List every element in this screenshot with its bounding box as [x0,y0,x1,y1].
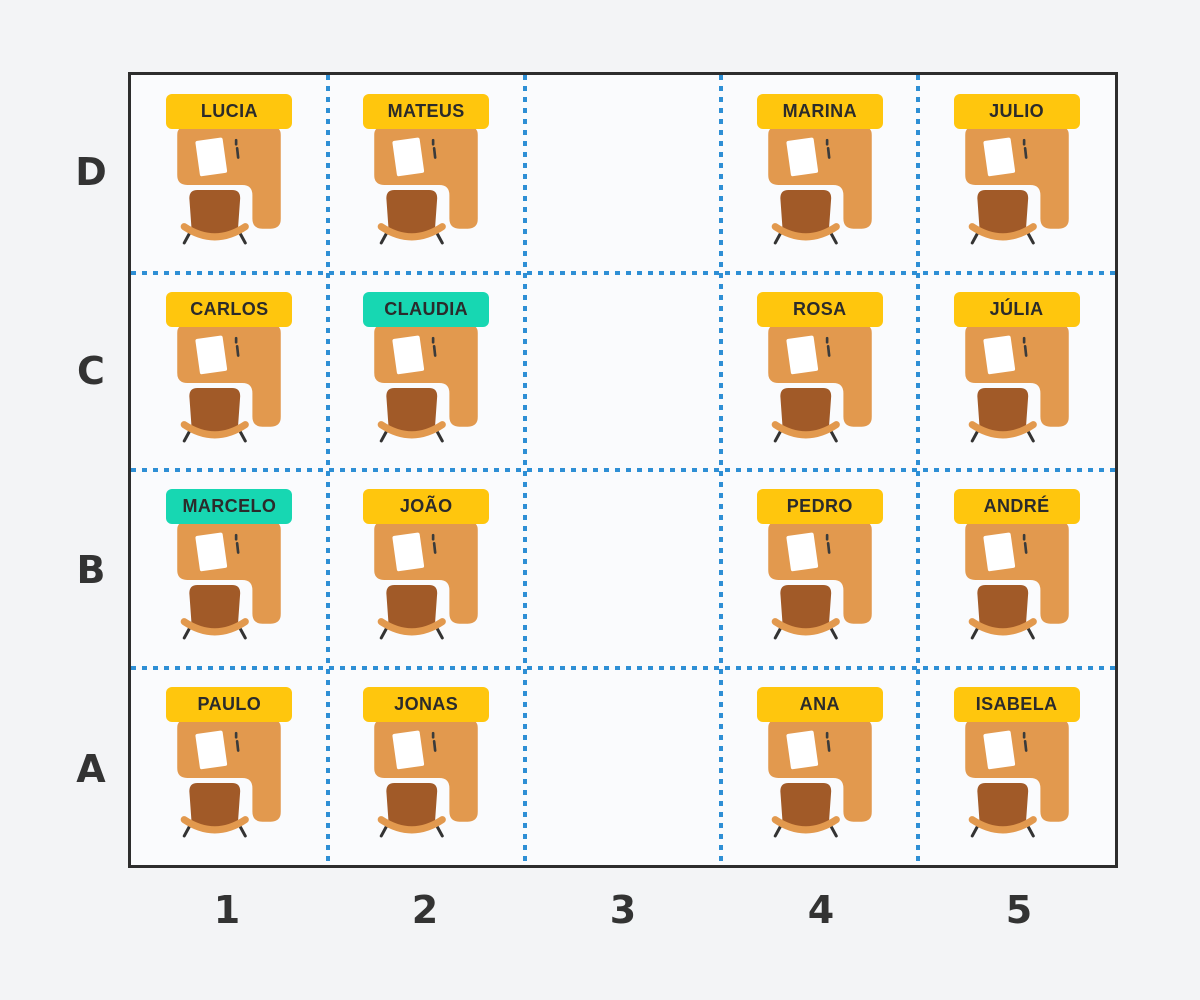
desk-icon [177,127,281,247]
seat-cell-C3 [525,273,722,471]
desk-icon [374,127,478,247]
seat-name-tag: ROSA [757,292,883,327]
seat-cell-C2: CLAUDIA [328,273,525,471]
seat-name-tag: PEDRO [757,489,883,524]
row-label-D: D [58,72,124,271]
seat-A2[interactable]: JONAS [363,687,489,840]
seat-cell-A4: ANA [721,668,918,866]
seat-name-tag: CARLOS [166,292,292,327]
seat-B1[interactable]: MARCELO [166,489,292,642]
seat-A5[interactable]: ISABELA [954,687,1080,840]
seat-name-tag: JOÃO [363,489,489,524]
seat-D5[interactable]: JULIO [954,94,1080,247]
seat-name-tag: PAULO [166,687,292,722]
seat-A4[interactable]: ANA [757,687,883,840]
seat-name-tag: MARINA [757,94,883,129]
grid-divider-horizontal-3 [131,666,1115,670]
desk-icon [374,720,478,840]
seat-cell-D1: LUCIA [131,75,328,273]
seat-cell-C4: ROSA [721,273,918,471]
seat-cell-A2: JONAS [328,668,525,866]
desk-icon [965,720,1069,840]
grid-divider-horizontal-2 [131,468,1115,472]
desk-icon [965,127,1069,247]
col-label-1: 1 [128,871,326,949]
row-label-B: B [58,470,124,669]
desk-icon [768,325,872,445]
desk-icon [768,127,872,247]
seat-name-tag: MARCELO [166,489,292,524]
seat-cell-B3 [525,470,722,668]
col-label-2: 2 [326,871,524,949]
col-labels: 12345 [128,871,1118,949]
seat-name-tag: LUCIA [166,94,292,129]
desk-icon [768,720,872,840]
seat-D4[interactable]: MARINA [757,94,883,247]
seat-name-tag: ISABELA [954,687,1080,722]
seat-name-tag: JULIO [954,94,1080,129]
seat-cell-B5: ANDRÉ [918,470,1115,668]
seat-D1[interactable]: LUCIA [166,94,292,247]
desk-icon [177,522,281,642]
seat-cell-C1: CARLOS [131,273,328,471]
desk-icon [177,325,281,445]
seat-name-tag: JONAS [363,687,489,722]
seat-cell-A5: ISABELA [918,668,1115,866]
seat-D2[interactable]: MATEUS [363,94,489,247]
col-label-4: 4 [722,871,920,949]
seat-C4[interactable]: ROSA [757,292,883,445]
seat-name-tag: ANDRÉ [954,489,1080,524]
row-label-A: A [58,669,124,868]
seat-name-tag: MATEUS [363,94,489,129]
seat-cell-A1: PAULO [131,668,328,866]
seating-chart: DCBA LUCIAMATEUSMARINAJULIOCARLOSCLAUDIA… [0,0,1200,1000]
desk-icon [965,522,1069,642]
seat-B4[interactable]: PEDRO [757,489,883,642]
seat-cell-C5: JÚLIA [918,273,1115,471]
row-labels: DCBA [58,72,124,868]
seat-cell-B1: MARCELO [131,470,328,668]
seat-C2[interactable]: CLAUDIA [363,292,489,445]
seat-name-tag: ANA [757,687,883,722]
seat-C1[interactable]: CARLOS [166,292,292,445]
desk-icon [374,325,478,445]
seat-cell-D2: MATEUS [328,75,525,273]
seat-B2[interactable]: JOÃO [363,489,489,642]
seat-cell-D5: JULIO [918,75,1115,273]
seat-name-tag: CLAUDIA [363,292,489,327]
seat-cell-D3 [525,75,722,273]
seat-cell-D4: MARINA [721,75,918,273]
seat-B5[interactable]: ANDRÉ [954,489,1080,642]
col-label-3: 3 [524,871,722,949]
seat-name-tag: JÚLIA [954,292,1080,327]
desk-icon [177,720,281,840]
desk-icon [965,325,1069,445]
seat-cell-A3 [525,668,722,866]
seat-A1[interactable]: PAULO [166,687,292,840]
row-label-C: C [58,271,124,470]
seat-C5[interactable]: JÚLIA [954,292,1080,445]
grid-divider-horizontal-1 [131,271,1115,275]
seat-cell-B2: JOÃO [328,470,525,668]
board: LUCIAMATEUSMARINAJULIOCARLOSCLAUDIAROSAJ… [128,72,1118,868]
col-label-5: 5 [920,871,1118,949]
desk-icon [374,522,478,642]
desk-icon [768,522,872,642]
seat-cell-B4: PEDRO [721,470,918,668]
